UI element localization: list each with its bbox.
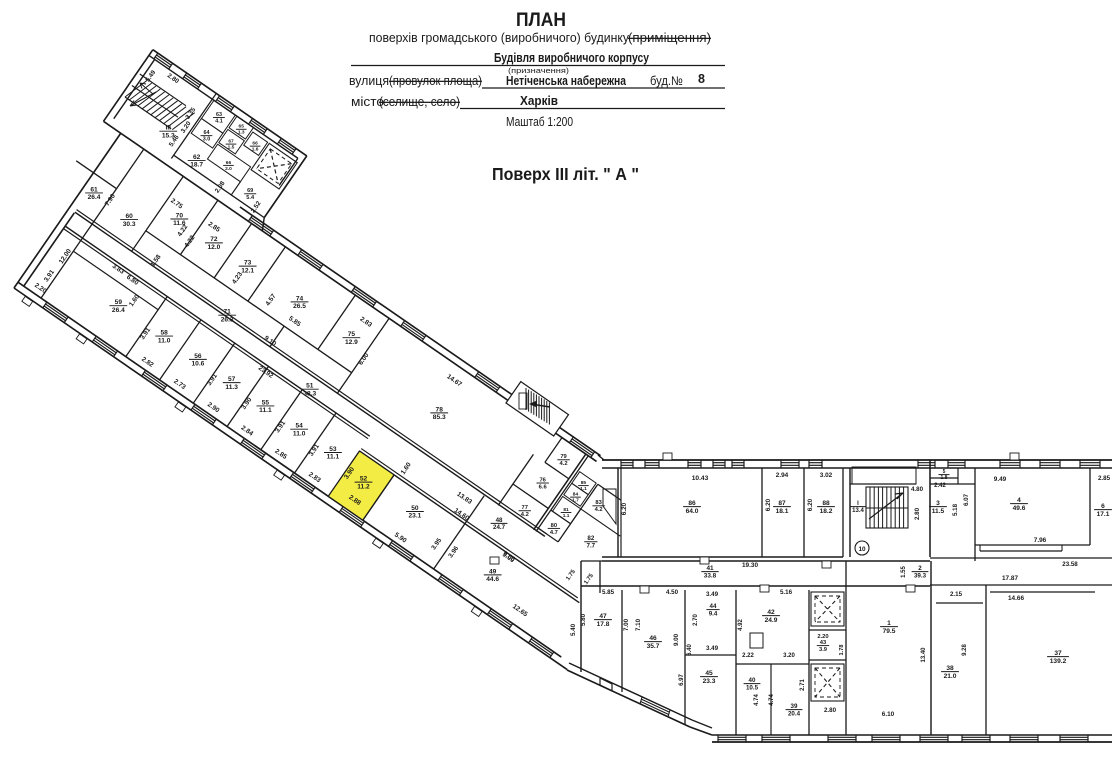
- svg-text:2.80: 2.80: [914, 507, 921, 520]
- svg-text:77: 77: [522, 505, 528, 511]
- svg-text:58: 58: [160, 329, 168, 336]
- svg-text:вулиця: вулиця: [349, 74, 389, 88]
- svg-text:Будівля виробничого корпусу: Будівля виробничого корпусу: [494, 51, 649, 65]
- svg-text:6.07: 6.07: [963, 493, 970, 506]
- svg-text:19.30: 19.30: [742, 562, 758, 569]
- svg-text:1.78: 1.78: [839, 645, 845, 656]
- svg-text:8: 8: [698, 72, 705, 86]
- svg-text:85.3: 85.3: [433, 414, 446, 421]
- svg-text:11.3: 11.3: [225, 384, 238, 391]
- svg-text:139.2: 139.2: [1050, 658, 1067, 665]
- svg-text:1.1: 1.1: [563, 513, 570, 519]
- svg-text:88: 88: [822, 500, 830, 507]
- svg-text:76: 76: [539, 477, 546, 483]
- svg-text:18.2: 18.2: [820, 508, 833, 515]
- svg-text:44.6: 44.6: [486, 576, 499, 583]
- svg-text:80: 80: [551, 523, 557, 529]
- svg-text:6.20: 6.20: [621, 502, 628, 515]
- svg-text:65: 65: [239, 124, 245, 130]
- svg-text:33.8: 33.8: [704, 573, 717, 580]
- svg-text:2.0: 2.0: [225, 166, 232, 172]
- svg-text:52: 52: [360, 476, 368, 483]
- svg-text:12.9: 12.9: [345, 339, 358, 346]
- svg-text:4.92: 4.92: [738, 619, 744, 631]
- svg-text:74: 74: [296, 295, 304, 302]
- svg-text:6.6: 6.6: [539, 484, 548, 490]
- svg-text:39.3: 39.3: [914, 572, 927, 579]
- svg-text:5.4: 5.4: [246, 195, 255, 201]
- svg-text:24.7: 24.7: [493, 524, 506, 531]
- svg-text:Харків: Харків: [520, 94, 558, 108]
- svg-text:63: 63: [216, 112, 222, 118]
- svg-text:3: 3: [936, 500, 940, 507]
- svg-text:4.2: 4.2: [595, 507, 603, 513]
- svg-text:21.0: 21.0: [944, 673, 957, 680]
- svg-text:(приміщення): (приміщення): [628, 31, 711, 45]
- svg-text:11.1: 11.1: [327, 454, 340, 461]
- svg-text:2.94: 2.94: [776, 472, 789, 479]
- svg-text:48: 48: [496, 517, 503, 524]
- svg-text:66: 66: [252, 141, 258, 147]
- svg-text:87: 87: [778, 500, 786, 507]
- svg-text:26.4: 26.4: [88, 194, 101, 201]
- svg-text:6.20: 6.20: [765, 498, 772, 511]
- svg-text:44: 44: [710, 603, 717, 610]
- svg-text:64.0: 64.0: [686, 508, 699, 515]
- svg-text:10.6: 10.6: [191, 361, 204, 368]
- svg-text:1.6: 1.6: [252, 147, 259, 153]
- svg-text:45: 45: [705, 670, 713, 677]
- svg-text:17.87: 17.87: [1002, 575, 1018, 582]
- svg-text:4.74: 4.74: [754, 694, 760, 706]
- svg-text:56: 56: [194, 353, 202, 360]
- svg-text:7.00: 7.00: [623, 618, 630, 631]
- svg-text:6.40: 6.40: [687, 644, 693, 656]
- svg-text:7.7: 7.7: [587, 543, 596, 550]
- svg-text:67: 67: [228, 138, 234, 144]
- svg-text:5.18: 5.18: [952, 503, 959, 516]
- svg-text:10.5: 10.5: [746, 684, 759, 691]
- svg-text:50: 50: [411, 505, 419, 512]
- svg-text:47: 47: [599, 613, 607, 620]
- svg-text:23.1: 23.1: [408, 513, 421, 520]
- svg-text:2.70: 2.70: [693, 614, 699, 626]
- svg-text:71: 71: [224, 309, 232, 316]
- svg-text:3.20: 3.20: [783, 653, 795, 659]
- svg-text:18.1: 18.1: [776, 508, 789, 515]
- svg-text:61: 61: [90, 186, 98, 193]
- svg-text:11.0: 11.0: [293, 430, 306, 437]
- svg-text:Нетіченська набережна: Нетіченська набережна: [506, 74, 627, 88]
- svg-text:4.80: 4.80: [911, 486, 924, 493]
- svg-text:41: 41: [706, 565, 714, 572]
- svg-text:13.40: 13.40: [921, 647, 927, 663]
- svg-text:55: 55: [262, 399, 270, 406]
- svg-text:11.1: 11.1: [259, 407, 272, 414]
- svg-text:10.43: 10.43: [692, 475, 709, 482]
- svg-text:2: 2: [918, 565, 922, 572]
- svg-text:83: 83: [595, 500, 602, 506]
- svg-text:49.6: 49.6: [1013, 505, 1026, 512]
- svg-text:30.3: 30.3: [123, 221, 136, 228]
- svg-text:60: 60: [125, 213, 133, 220]
- svg-text:26.4: 26.4: [112, 307, 125, 314]
- svg-text:6.97: 6.97: [679, 674, 685, 686]
- svg-text:18.7: 18.7: [190, 162, 203, 169]
- svg-text:82: 82: [587, 535, 594, 542]
- svg-text:11.2: 11.2: [357, 483, 370, 490]
- svg-text:4: 4: [1017, 497, 1021, 504]
- svg-text:75: 75: [348, 331, 356, 338]
- svg-text:9.4: 9.4: [709, 610, 718, 617]
- svg-text:5.40: 5.40: [570, 623, 577, 636]
- svg-text:11.0: 11.0: [158, 337, 171, 344]
- svg-text:1.1: 1.1: [580, 486, 587, 492]
- svg-text:1.3: 1.3: [238, 130, 245, 136]
- svg-text:7.10: 7.10: [635, 618, 642, 631]
- svg-text:17.8: 17.8: [597, 621, 610, 628]
- svg-text:62: 62: [193, 154, 201, 161]
- svg-text:10: 10: [858, 546, 866, 553]
- svg-text:3.49: 3.49: [706, 591, 719, 598]
- svg-text:51: 51: [306, 383, 314, 390]
- svg-text:5: 5: [943, 469, 946, 475]
- svg-text:поверхів громадського (виробни: поверхів громадського (виробничого) буди…: [369, 31, 630, 45]
- svg-text:Маштаб 1:200: Маштаб 1:200: [506, 115, 573, 129]
- svg-text:1.8: 1.8: [941, 475, 948, 481]
- svg-text:37: 37: [1054, 650, 1062, 657]
- svg-text:35.7: 35.7: [647, 643, 660, 650]
- svg-text:2.20: 2.20: [817, 634, 828, 640]
- svg-text:38: 38: [946, 665, 954, 672]
- svg-text:14.66: 14.66: [1008, 595, 1024, 602]
- svg-text:70: 70: [176, 212, 184, 219]
- svg-text:73: 73: [244, 260, 252, 267]
- svg-text:23.58: 23.58: [1062, 561, 1078, 568]
- svg-text:20.4: 20.4: [788, 710, 801, 717]
- svg-text:54: 54: [295, 423, 303, 430]
- svg-text:5.16: 5.16: [780, 589, 793, 596]
- svg-text:86: 86: [688, 500, 696, 507]
- svg-text:81: 81: [563, 507, 569, 513]
- svg-text:85: 85: [581, 480, 587, 486]
- svg-text:2.15: 2.15: [950, 591, 963, 598]
- svg-text:84: 84: [573, 492, 579, 498]
- svg-text:буд.№: буд.№: [650, 74, 683, 88]
- svg-text:3.9: 3.9: [819, 647, 828, 653]
- svg-text:3.02: 3.02: [820, 472, 833, 479]
- svg-text:66: 66: [226, 160, 232, 166]
- svg-text:1.5: 1.5: [228, 144, 235, 150]
- svg-text:42: 42: [767, 609, 775, 616]
- svg-text:6.20: 6.20: [807, 498, 814, 511]
- svg-text:6.10: 6.10: [882, 711, 895, 718]
- svg-text:1.7: 1.7: [572, 498, 579, 504]
- svg-text:17.1: 17.1: [1097, 511, 1110, 518]
- svg-text:4.2: 4.2: [560, 461, 568, 467]
- svg-text:5.85: 5.85: [602, 589, 615, 596]
- svg-text:2.22: 2.22: [742, 653, 754, 659]
- svg-text:4.1: 4.1: [215, 119, 223, 125]
- svg-text:72: 72: [210, 236, 218, 243]
- svg-text:49: 49: [489, 568, 497, 575]
- svg-text:(селище, село): (селище, село): [379, 95, 460, 109]
- svg-text:5.80: 5.80: [580, 613, 587, 626]
- svg-text:59: 59: [115, 299, 123, 306]
- svg-text:1.55: 1.55: [901, 566, 907, 578]
- svg-text:12.1: 12.1: [241, 267, 254, 274]
- svg-text:9.49: 9.49: [994, 476, 1007, 483]
- svg-text:78: 78: [436, 406, 444, 413]
- svg-text:4.74: 4.74: [769, 694, 775, 706]
- svg-text:79: 79: [560, 454, 567, 460]
- svg-text:43: 43: [820, 640, 827, 646]
- svg-text:Поверх ІІІ літ. " А ": Поверх ІІІ літ. " А ": [492, 164, 639, 184]
- svg-text:1: 1: [887, 620, 891, 627]
- svg-text:9.28: 9.28: [962, 644, 968, 656]
- svg-text:11.5: 11.5: [932, 508, 945, 515]
- svg-text:39: 39: [791, 703, 798, 710]
- svg-text:64: 64: [203, 130, 209, 136]
- svg-text:57: 57: [228, 376, 236, 383]
- svg-text:24.9: 24.9: [765, 617, 778, 624]
- svg-text:4.2: 4.2: [521, 512, 529, 518]
- svg-text:6: 6: [1101, 503, 1105, 510]
- svg-text:53: 53: [329, 446, 337, 453]
- svg-text:2.80: 2.80: [824, 707, 837, 714]
- svg-text:38.3: 38.3: [303, 390, 316, 397]
- svg-text:3.49: 3.49: [706, 645, 719, 652]
- svg-text:9.00: 9.00: [673, 633, 680, 646]
- svg-text:26.5: 26.5: [293, 303, 306, 310]
- svg-text:12.0: 12.0: [207, 244, 220, 251]
- svg-text:2.42: 2.42: [934, 483, 946, 489]
- svg-text:40: 40: [749, 677, 756, 684]
- svg-text:ПЛАН: ПЛАН: [516, 10, 566, 31]
- svg-text:23.3: 23.3: [703, 678, 716, 685]
- svg-text:2.85: 2.85: [1098, 475, 1111, 482]
- svg-text:4.7: 4.7: [550, 530, 558, 536]
- svg-text:2.71: 2.71: [800, 679, 806, 691]
- svg-text:69: 69: [247, 188, 253, 194]
- svg-text:3.0: 3.0: [203, 137, 211, 143]
- svg-text:7.96: 7.96: [1034, 537, 1047, 544]
- svg-text:46: 46: [649, 635, 657, 642]
- svg-text:4.50: 4.50: [666, 589, 679, 596]
- svg-text:13.4: 13.4: [852, 508, 864, 514]
- svg-text:79.5: 79.5: [883, 628, 896, 635]
- svg-text:(провулок площа): (провулок площа): [389, 74, 482, 88]
- svg-text:26.3: 26.3: [221, 316, 234, 323]
